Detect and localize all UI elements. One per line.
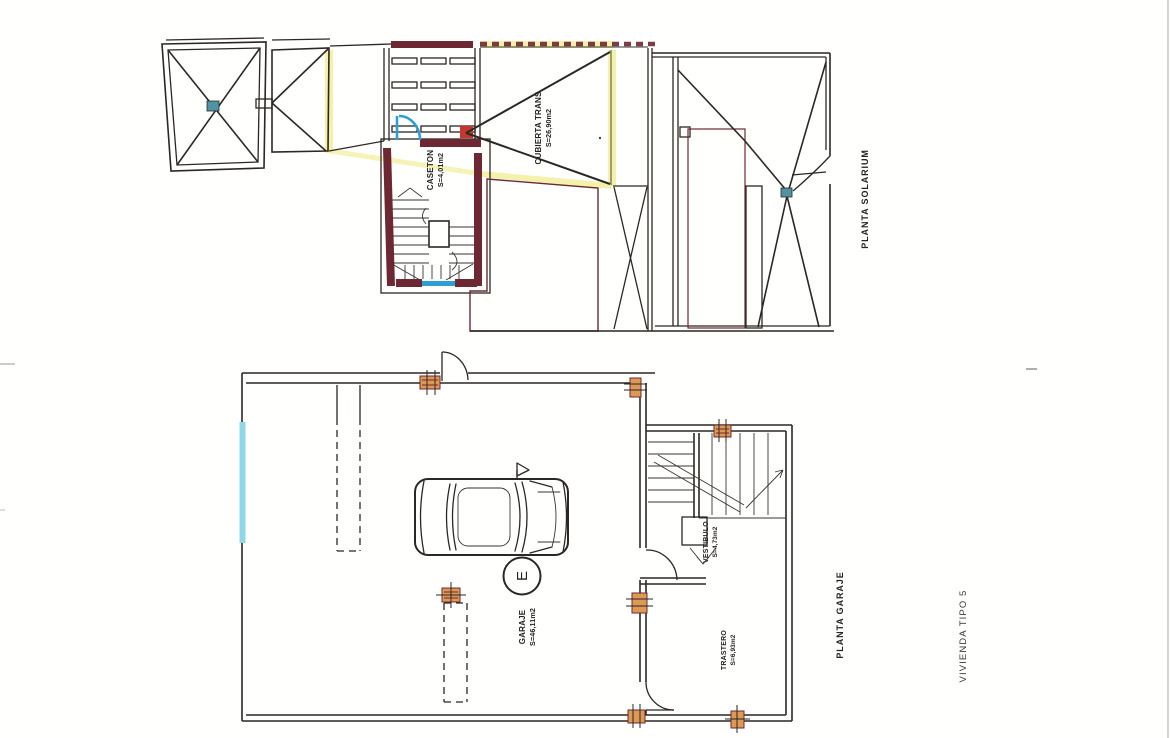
narrow-roof-strip — [613, 48, 652, 331]
ceiling-beam-lines — [337, 385, 360, 551]
tiled-roof-strip — [688, 129, 745, 328]
room-area: S=4,73m2 — [712, 526, 719, 557]
solarium-plan-drawing: CASETON S=4,01m2 CUBIERTA TRANS S=26,90m… — [162, 38, 870, 331]
elevator-circle: E — [504, 558, 541, 595]
caseton-door — [397, 116, 420, 140]
room-area: S=4,01m2 — [436, 153, 445, 187]
scan-artifacts — [0, 0, 1168, 738]
room-area: S=26,90m2 — [544, 109, 553, 147]
svg-text:PLANTA GARAJE: PLANTA GARAJE — [835, 571, 845, 658]
caseton: CASETON S=4,01m2 — [381, 116, 490, 293]
column — [436, 582, 466, 608]
cubierta-label: CUBIERTA TRANS S=26,90m2 — [534, 91, 553, 164]
svg-text:PLANTA SOLARIUM: PLANTA SOLARIUM — [860, 149, 870, 249]
entry-door — [442, 352, 468, 381]
drain-square — [207, 101, 219, 111]
svg-text:VIVIENDA TIPO 5: VIVIENDA TIPO 5 — [958, 590, 969, 683]
dwelling-type-label: VIVIENDA TIPO 5 — [958, 590, 969, 683]
caseton-label: CASETON S=4,01m2 — [426, 150, 445, 190]
trastero-door — [646, 682, 674, 710]
yellow-highlight — [325, 41, 616, 186]
tiled-roof-area — [470, 179, 598, 331]
roof-box-left — [162, 38, 272, 171]
room-name: VESTIBULO — [703, 521, 710, 563]
parking-bay-dashed — [444, 603, 467, 702]
solarium-title: PLANTA SOLARIUM — [860, 149, 870, 249]
garage-title: PLANTA GARAJE — [835, 571, 845, 658]
highlighted-wall — [240, 422, 246, 543]
roof-section-right — [652, 53, 830, 328]
garage-plan-drawing: E GARAJE S=46,11m2 VESTIBULO S=4,73m2 TR… — [240, 352, 846, 733]
floorplan-drawing: CASETON S=4,01m2 CUBIERTA TRANS S=26,90m… — [0, 0, 1170, 738]
drain-square — [781, 188, 792, 197]
vestibule-door — [646, 550, 677, 580]
column — [626, 593, 653, 613]
room-area: S=46,11m2 — [528, 608, 537, 646]
scanned-floorplan-page: CASETON S=4,01m2 CUBIERTA TRANS S=26,90m… — [0, 0, 1170, 738]
pergola-top-beam — [391, 41, 473, 48]
car-mirror — [517, 463, 529, 476]
pergola-slats — [392, 58, 475, 132]
elevator-mark: E — [514, 571, 531, 581]
room-area: S=6,93m2 — [730, 634, 737, 665]
column — [624, 378, 647, 397]
column — [714, 419, 731, 442]
column — [628, 704, 645, 728]
room-name: TRASTERO — [721, 630, 728, 670]
window-sill — [422, 281, 455, 286]
vestibulo-label: VESTIBULO S=4,73m2 — [703, 521, 719, 563]
caseton-stairs — [391, 188, 474, 280]
car — [415, 463, 568, 555]
column — [725, 705, 750, 733]
room-name: CUBIERTA TRANS — [534, 91, 543, 164]
room-name: CASETON — [426, 150, 435, 190]
trastero-label: TRASTERO S=6,93m2 — [721, 630, 737, 670]
garaje-label: GARAJE S=46,11m2 — [518, 608, 537, 646]
room-name: GARAJE — [518, 609, 527, 644]
